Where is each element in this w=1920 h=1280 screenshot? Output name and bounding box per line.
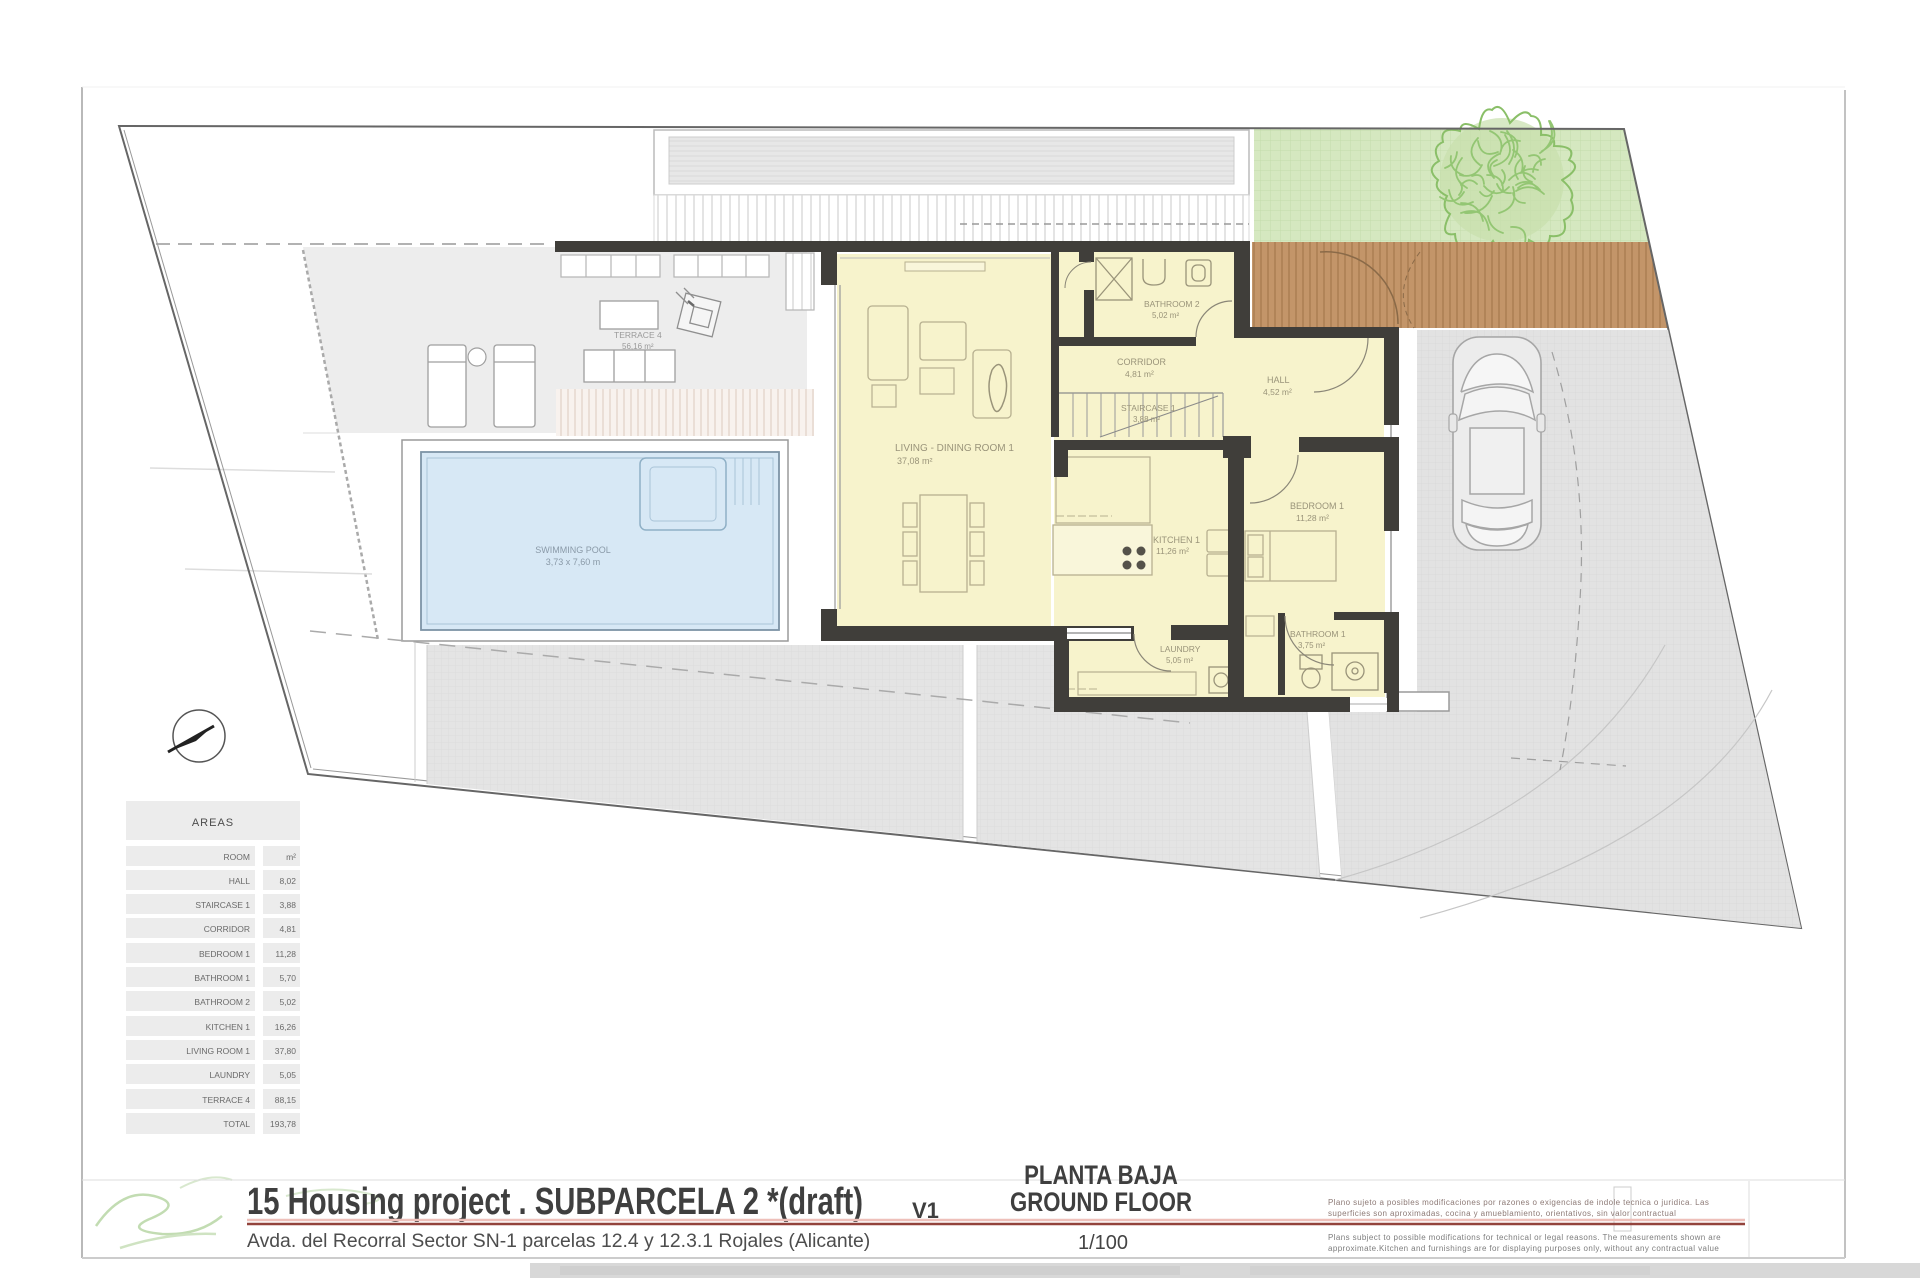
svg-text:16,26: 16,26 [275,1022,297,1032]
svg-text:11,28 m²: 11,28 m² [1296,513,1329,523]
svg-text:CORRIDOR: CORRIDOR [204,924,250,934]
svg-text:37,80: 37,80 [275,1046,297,1056]
svg-text:3,88: 3,88 [279,900,296,910]
svg-text:3,75 m²: 3,75 m² [1298,641,1325,650]
svg-text:AREAS: AREAS [192,817,234,829]
svg-text:193,78: 193,78 [270,1119,296,1129]
svg-text:LAUNDRY: LAUNDRY [210,1070,251,1080]
svg-text:LAUNDRY: LAUNDRY [1160,644,1201,654]
svg-text:STAIRCASE 1: STAIRCASE 1 [1121,403,1176,413]
svg-text:3,73 x 7,60 m: 3,73 x 7,60 m [546,557,601,567]
svg-text:approximate.Kitchen and furnis: approximate.Kitchen and furnishings are … [1328,1244,1719,1253]
svg-text:5,05 m²: 5,05 m² [1166,656,1193,665]
svg-text:BEDROOM 1: BEDROOM 1 [1290,501,1344,511]
svg-text:4,81: 4,81 [279,924,296,934]
svg-text:BEDROOM 1: BEDROOM 1 [199,949,250,959]
svg-text:Plano sujeto a posibles modifi: Plano sujeto a posibles modificaciones p… [1328,1198,1709,1207]
svg-text:5,02 m²: 5,02 m² [1152,311,1179,320]
svg-text:11,28: 11,28 [275,949,296,959]
svg-text:ROOM: ROOM [224,852,250,862]
svg-text:11,26 m²: 11,26 m² [1156,546,1189,556]
svg-text:BATHROOM 1: BATHROOM 1 [1290,629,1346,639]
svg-text:8,02: 8,02 [279,876,296,886]
svg-text:Plans subject to possible modi: Plans subject to possible modifications … [1328,1233,1721,1242]
svg-text:PLANTA BAJA: PLANTA BAJA [1024,1161,1178,1191]
svg-text:SWIMMING POOL: SWIMMING POOL [535,545,611,555]
svg-text:KITCHEN 1: KITCHEN 1 [1153,535,1200,545]
svg-text:4,52 m²: 4,52 m² [1263,387,1292,397]
svg-text:superficies son aproximadas, c: superficies son aproximadas, cocina y am… [1328,1209,1676,1218]
svg-text:5,05: 5,05 [279,1070,296,1080]
svg-text:GROUND FLOOR: GROUND FLOOR [1010,1188,1192,1218]
svg-text:TERRACE 4: TERRACE 4 [614,330,662,340]
svg-text:TOTAL: TOTAL [223,1119,250,1129]
svg-text:KITCHEN 1: KITCHEN 1 [206,1022,251,1032]
svg-text:4,81 m²: 4,81 m² [1125,369,1154,379]
svg-text:37,08 m²: 37,08 m² [897,456,933,466]
svg-text:15 Housing project . SUBPARCEL: 15 Housing project . SUBPARCELA 2 *(draf… [247,1180,863,1223]
svg-text:m²: m² [286,852,296,862]
svg-text:LIVING ROOM 1: LIVING ROOM 1 [186,1046,250,1056]
svg-text:3,88 m²: 3,88 m² [1133,415,1160,424]
svg-text:88,15: 88,15 [275,1095,297,1105]
svg-text:CORRIDOR: CORRIDOR [1117,357,1166,367]
svg-text:TERRACE 4: TERRACE 4 [202,1095,250,1105]
svg-text:HALL: HALL [229,876,251,886]
svg-text:Avda. del Recorral Sector SN-1: Avda. del Recorral Sector SN-1 parcelas … [247,1231,870,1252]
svg-text:V1: V1 [912,1198,939,1223]
svg-text:STAIRCASE 1: STAIRCASE 1 [195,900,250,910]
svg-text:LIVING - DINING ROOM 1: LIVING - DINING ROOM 1 [895,443,1014,454]
svg-text:5,02: 5,02 [279,997,296,1007]
svg-text:BATHROOM 2: BATHROOM 2 [1144,299,1200,309]
svg-text:1/100: 1/100 [1078,1232,1128,1254]
svg-text:BATHROOM 2: BATHROOM 2 [194,997,250,1007]
svg-text:BATHROOM 1: BATHROOM 1 [194,973,250,983]
svg-text:5,70: 5,70 [279,973,296,983]
svg-text:HALL: HALL [1267,375,1290,385]
